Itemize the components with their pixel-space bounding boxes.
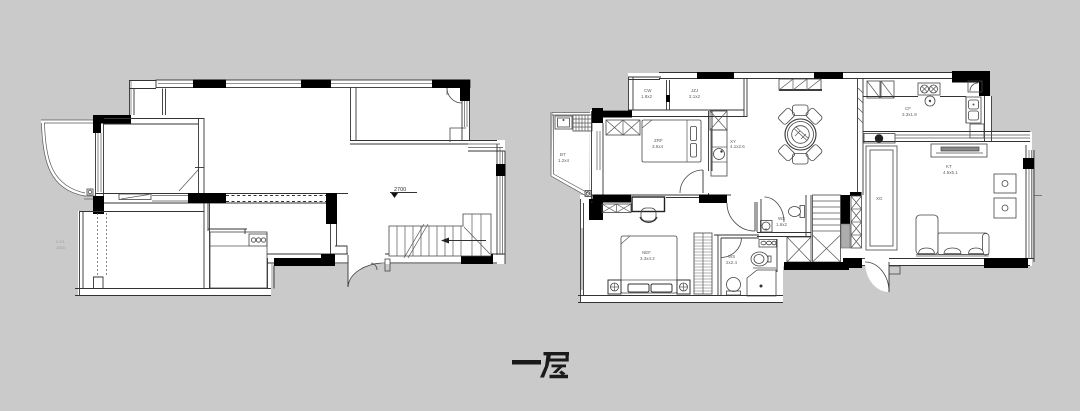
svg-text:3.3x4.2: 3.3x4.2 [640,256,655,261]
svg-text:4.5x5.1: 4.5x5.1 [943,170,958,175]
svg-text:2-C1: 2-C1 [56,239,65,244]
svg-text:KT: KT [946,164,952,169]
svg-text:BT: BT [560,152,566,157]
svg-text:1.6x2: 1.6x2 [776,222,788,227]
svg-text:ZRF: ZRF [654,138,663,143]
svg-text:CF: CF [905,106,911,111]
svg-text:3.6x4: 3.6x4 [652,144,664,149]
svg-text:1.8x2: 1.8x2 [641,94,653,99]
svg-text:2x2.4: 2x2.4 [726,260,738,265]
svg-text:XG: XG [876,196,883,201]
svg-text:2.1x2: 2.1x2 [689,94,701,99]
svg-text:CW: CW [644,88,652,93]
svg-text:JZJ: JZJ [691,88,698,93]
svg-text:WS: WS [728,254,735,259]
svg-text:1515: 1515 [56,245,66,250]
svg-text:4.1x2.6: 4.1x2.6 [730,144,745,149]
svg-text:NEF: NEF [642,250,651,255]
svg-text:1.2x4: 1.2x4 [558,158,570,163]
svg-text:WS: WS [778,216,785,221]
svg-text:3.3x1.9: 3.3x1.9 [902,112,917,117]
